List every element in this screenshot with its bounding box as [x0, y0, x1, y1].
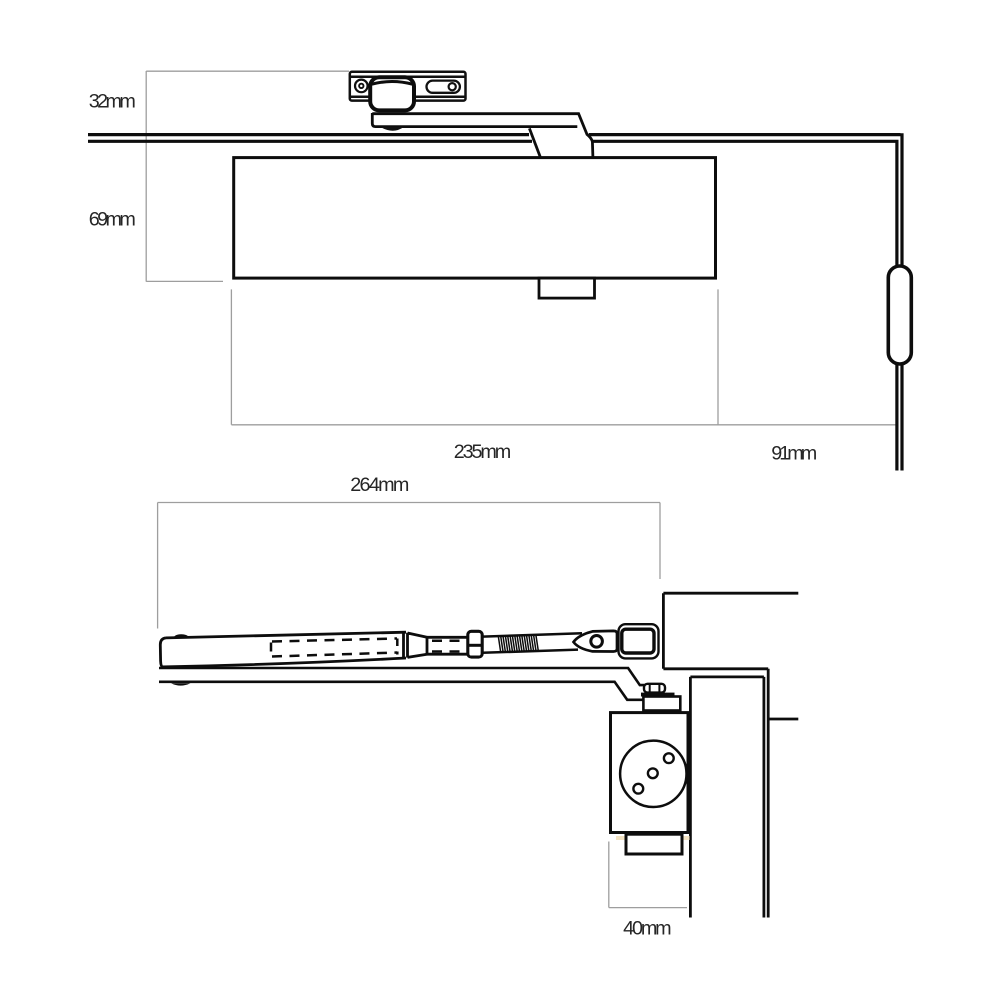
svg-text:264mm: 264mm [350, 474, 409, 496]
svg-text:235mm: 235mm [454, 441, 512, 463]
svg-text:40mm: 40mm [623, 917, 672, 939]
svg-text:69mm: 69mm [89, 208, 136, 230]
svg-text:91mm: 91mm [771, 443, 817, 465]
svg-text:32mm: 32mm [89, 91, 136, 113]
